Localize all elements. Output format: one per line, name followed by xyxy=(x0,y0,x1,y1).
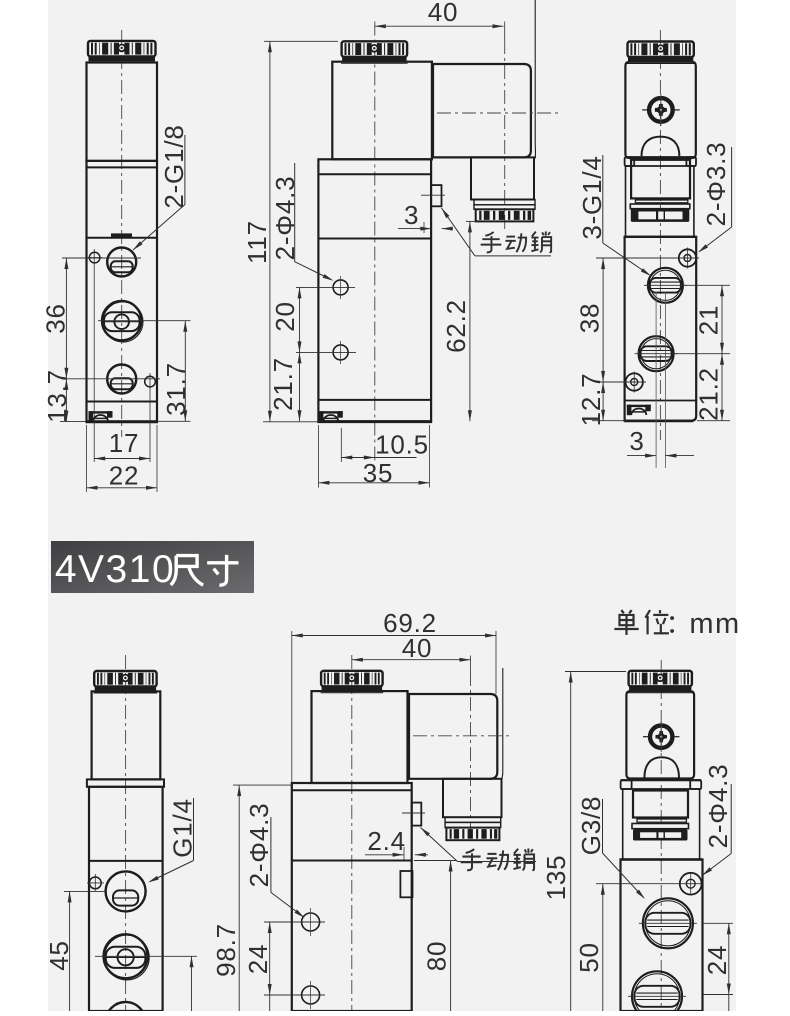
svg-text:12.7: 12.7 xyxy=(576,373,606,427)
svg-text:31.7: 31.7 xyxy=(161,362,191,416)
svg-text:4V310: 4V310 xyxy=(55,548,175,591)
svg-text:62.2: 62.2 xyxy=(441,299,471,353)
svg-text:2-Φ3.3: 2-Φ3.3 xyxy=(701,142,731,227)
svg-text:24: 24 xyxy=(243,944,273,975)
svg-text:45: 45 xyxy=(44,940,74,971)
svg-text:13.7: 13.7 xyxy=(42,369,72,423)
svg-text:G3/8: G3/8 xyxy=(576,796,606,856)
svg-text:3: 3 xyxy=(629,426,644,456)
svg-text:80: 80 xyxy=(422,941,452,972)
svg-text:40: 40 xyxy=(402,633,433,663)
svg-text:2.4: 2.4 xyxy=(367,826,406,856)
svg-text:3: 3 xyxy=(404,200,419,230)
svg-text:40: 40 xyxy=(428,0,459,27)
svg-text:98.7: 98.7 xyxy=(211,923,241,977)
svg-text:21.7: 21.7 xyxy=(268,357,298,411)
svg-text:2-Φ4.3: 2-Φ4.3 xyxy=(244,803,274,888)
svg-text:21.2: 21.2 xyxy=(693,367,723,421)
svg-text:36: 36 xyxy=(41,303,71,334)
svg-text:22: 22 xyxy=(109,461,140,491)
svg-text:mm: mm xyxy=(689,608,740,640)
svg-text:21: 21 xyxy=(693,305,723,336)
svg-text:24: 24 xyxy=(702,945,732,976)
svg-text:2-Φ4.3: 2-Φ4.3 xyxy=(703,764,733,849)
svg-text:117: 117 xyxy=(242,220,272,264)
svg-text:35: 35 xyxy=(363,458,394,488)
svg-text:38: 38 xyxy=(575,303,605,334)
svg-text:17: 17 xyxy=(109,428,140,458)
svg-text:2-Φ4.3: 2-Φ4.3 xyxy=(270,176,300,261)
svg-text:20: 20 xyxy=(270,301,300,332)
svg-text:10.5: 10.5 xyxy=(375,430,429,460)
svg-text:50: 50 xyxy=(574,942,604,973)
svg-text:135: 135 xyxy=(541,855,571,901)
